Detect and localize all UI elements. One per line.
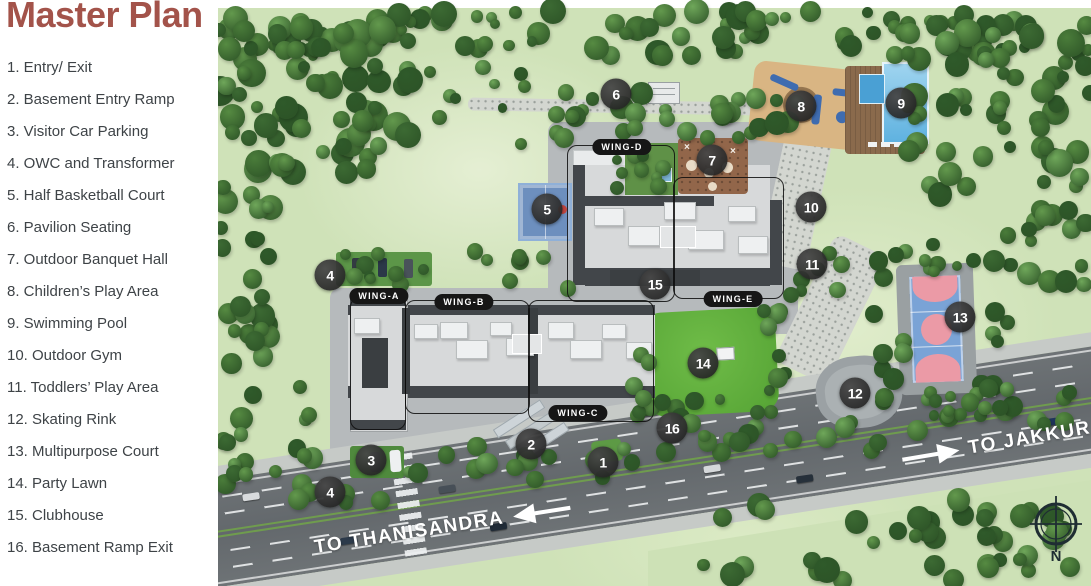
map-marker-16: 16 bbox=[657, 413, 688, 444]
map-marker-3: 3 bbox=[356, 445, 387, 476]
legend-item: 15. Clubhouse bbox=[7, 500, 175, 532]
legend-item: 7. Outdoor Banquet Hall bbox=[7, 244, 175, 276]
car bbox=[703, 464, 721, 473]
tree bbox=[489, 79, 499, 89]
tree bbox=[432, 110, 447, 125]
map-marker-11: 11 bbox=[797, 249, 828, 280]
tree bbox=[1035, 205, 1055, 225]
tree bbox=[1000, 382, 1014, 396]
tree bbox=[746, 88, 767, 109]
legend-item: 10. Outdoor Gym bbox=[7, 340, 175, 372]
tree bbox=[978, 52, 994, 68]
wing-pill-wing-b: WING-B bbox=[434, 294, 493, 310]
tree bbox=[388, 266, 404, 282]
legend-item: 9. Swimming Pool bbox=[7, 308, 175, 340]
tree bbox=[901, 46, 915, 60]
tree bbox=[239, 467, 253, 481]
map-marker-10: 10 bbox=[796, 192, 827, 223]
tree bbox=[1057, 29, 1085, 57]
tree bbox=[888, 247, 904, 263]
tree bbox=[992, 400, 1008, 416]
tree bbox=[698, 430, 710, 442]
map-marker-15: 15 bbox=[640, 269, 671, 300]
compass-icon bbox=[1026, 494, 1086, 554]
page-title: Master Plan bbox=[6, 0, 203, 36]
tree bbox=[1037, 175, 1051, 189]
tree bbox=[288, 489, 309, 510]
tree bbox=[251, 101, 263, 113]
kids-pool bbox=[859, 74, 885, 104]
tree bbox=[1031, 79, 1055, 103]
map-marker-2: 2 bbox=[516, 429, 547, 460]
tree bbox=[729, 432, 750, 453]
tree bbox=[471, 10, 483, 22]
tree bbox=[293, 380, 307, 394]
tree bbox=[993, 101, 1007, 115]
legend-item: 12. Skating Rink bbox=[7, 404, 175, 436]
map-marker-4: 4 bbox=[315, 477, 346, 508]
tree bbox=[764, 405, 778, 419]
tree bbox=[889, 522, 907, 540]
tree bbox=[467, 243, 483, 259]
tree bbox=[243, 269, 262, 288]
wing-pill-wing-e: WING-E bbox=[704, 291, 763, 307]
tree bbox=[627, 120, 643, 136]
tree bbox=[936, 142, 956, 162]
tree bbox=[370, 137, 388, 155]
tree bbox=[976, 509, 994, 527]
wing-pill-wing-a: WING-A bbox=[349, 288, 408, 304]
tree bbox=[945, 391, 956, 402]
legend-item: 14. Party Lawn bbox=[7, 468, 175, 500]
pool-lounger bbox=[881, 142, 890, 147]
tree bbox=[945, 52, 970, 77]
tree bbox=[960, 104, 972, 116]
tree bbox=[630, 82, 652, 104]
tree bbox=[228, 324, 241, 337]
tree bbox=[765, 111, 789, 135]
tree bbox=[966, 253, 981, 268]
tree bbox=[894, 344, 912, 362]
map-marker-9: 9 bbox=[886, 88, 917, 119]
tree bbox=[873, 344, 892, 363]
tree bbox=[907, 506, 931, 530]
tree bbox=[490, 19, 500, 29]
legend-item: 8. Children’s Play Area bbox=[7, 276, 175, 308]
tree bbox=[845, 510, 869, 534]
tree bbox=[652, 45, 673, 66]
tree bbox=[755, 500, 775, 520]
tree bbox=[287, 41, 305, 59]
legend-item: 3. Visitor Car Parking bbox=[7, 116, 175, 148]
tree bbox=[985, 27, 1001, 43]
tree bbox=[1013, 553, 1026, 566]
tree bbox=[1075, 259, 1089, 273]
tree bbox=[357, 159, 376, 178]
tree bbox=[935, 31, 959, 55]
tree bbox=[928, 182, 952, 206]
tree bbox=[526, 471, 544, 489]
tree bbox=[1019, 24, 1044, 49]
tree bbox=[565, 110, 578, 123]
tree bbox=[712, 26, 735, 49]
tree bbox=[316, 145, 330, 159]
tree bbox=[455, 36, 475, 56]
legend-item: 13. Multipurpose Court bbox=[7, 436, 175, 468]
tree bbox=[225, 125, 240, 140]
tree bbox=[929, 394, 942, 407]
tree bbox=[869, 434, 886, 451]
tree bbox=[757, 304, 771, 318]
tree bbox=[431, 1, 457, 27]
map-marker-8: 8 bbox=[786, 91, 817, 122]
tree bbox=[1000, 227, 1017, 244]
compass-north-label: N bbox=[1044, 548, 1068, 565]
tree bbox=[395, 122, 421, 148]
tree bbox=[1017, 262, 1040, 285]
tree bbox=[481, 254, 493, 266]
tree bbox=[476, 453, 498, 475]
tree bbox=[335, 161, 358, 184]
tree bbox=[991, 335, 1004, 348]
tree bbox=[221, 353, 241, 373]
wing-outline-e bbox=[673, 177, 784, 299]
tree bbox=[371, 491, 390, 510]
tree bbox=[512, 249, 527, 264]
tree bbox=[1075, 56, 1091, 76]
legend-item: 6. Pavilion Seating bbox=[7, 212, 175, 244]
tree bbox=[869, 251, 889, 271]
tree bbox=[900, 23, 920, 43]
pool-lounger bbox=[868, 142, 877, 147]
tree bbox=[254, 113, 278, 137]
tree bbox=[548, 106, 565, 123]
tree bbox=[835, 417, 856, 438]
tree bbox=[760, 318, 777, 335]
tree bbox=[558, 84, 574, 100]
legend-item: 2. Basement Entry Ramp bbox=[7, 84, 175, 116]
tree bbox=[829, 282, 846, 299]
tree bbox=[954, 408, 967, 421]
tree bbox=[1055, 270, 1077, 292]
tree bbox=[997, 67, 1010, 80]
tree bbox=[783, 287, 799, 303]
map-marker-6: 6 bbox=[601, 79, 632, 110]
tree bbox=[936, 93, 960, 117]
tree bbox=[367, 58, 383, 74]
tree bbox=[1070, 168, 1089, 187]
tree bbox=[232, 87, 247, 102]
tree bbox=[983, 250, 1005, 272]
tree bbox=[624, 454, 640, 470]
car bbox=[242, 492, 260, 501]
legend-item: 4. OWC and Transformer bbox=[7, 148, 175, 180]
wing-outline-c bbox=[528, 300, 654, 422]
tree bbox=[640, 18, 659, 37]
wing-pill-wing-d: WING-D bbox=[592, 139, 651, 155]
tree bbox=[973, 146, 994, 167]
legend-list: 1. Entry/ Exit2. Basement Entry Ramp3. V… bbox=[7, 52, 175, 564]
tree bbox=[371, 247, 385, 261]
tree bbox=[515, 138, 527, 150]
tree bbox=[883, 368, 905, 390]
tree bbox=[475, 60, 490, 75]
tree bbox=[833, 256, 850, 273]
tree bbox=[503, 40, 515, 52]
tree bbox=[1082, 85, 1091, 102]
tree bbox=[928, 266, 939, 277]
tree bbox=[814, 557, 840, 583]
tree bbox=[866, 26, 881, 41]
map-marker-7: 7 bbox=[697, 145, 728, 176]
map-marker-12: 12 bbox=[840, 378, 871, 409]
tree bbox=[369, 16, 396, 43]
tree bbox=[1076, 214, 1091, 233]
tree bbox=[298, 61, 310, 73]
tree bbox=[898, 140, 920, 162]
map-marker-1: 1 bbox=[588, 447, 619, 478]
tree bbox=[311, 38, 330, 57]
tree bbox=[408, 463, 427, 482]
tree bbox=[352, 110, 373, 131]
legend-item: 5. Half Basketball Court bbox=[7, 180, 175, 212]
tree bbox=[424, 66, 436, 78]
tree bbox=[509, 6, 522, 19]
tree bbox=[218, 37, 241, 60]
tree bbox=[506, 459, 523, 476]
legend-item: 16. Basement Ramp Exit bbox=[7, 532, 175, 564]
car bbox=[796, 474, 814, 483]
tree bbox=[237, 66, 251, 80]
tree bbox=[333, 23, 354, 44]
tree bbox=[979, 379, 998, 398]
tree bbox=[909, 529, 923, 543]
tree bbox=[275, 96, 298, 119]
tree bbox=[278, 155, 294, 171]
tree bbox=[554, 128, 574, 148]
tree bbox=[697, 559, 710, 572]
tree bbox=[1021, 222, 1037, 238]
tree bbox=[297, 448, 313, 464]
tree bbox=[254, 289, 270, 305]
tree bbox=[340, 249, 351, 260]
wing-outline-a bbox=[350, 297, 406, 430]
tree bbox=[875, 388, 894, 407]
tree bbox=[768, 368, 788, 388]
wing-outline-b bbox=[405, 300, 530, 414]
tree bbox=[333, 111, 350, 128]
pavilion-seating bbox=[648, 82, 680, 104]
tree bbox=[1062, 385, 1077, 400]
legend-item: 11. Toddlers’ Play Area bbox=[7, 372, 175, 404]
tree bbox=[720, 562, 745, 586]
tree bbox=[584, 36, 608, 60]
tree bbox=[536, 250, 551, 265]
tree bbox=[677, 122, 697, 142]
tree bbox=[306, 74, 324, 92]
tree bbox=[997, 121, 1011, 135]
map-marker-13: 13 bbox=[945, 302, 976, 333]
tree bbox=[943, 569, 964, 586]
wing-pill-wing-c: WING-C bbox=[548, 405, 607, 421]
tree bbox=[1038, 140, 1053, 155]
tree bbox=[234, 427, 249, 442]
map-marker-5: 5 bbox=[532, 194, 563, 225]
master-plan-page: × × TO THANISANDRATO JAKKUR bbox=[0, 0, 1091, 586]
legend-item: 1. Entry/ Exit bbox=[7, 52, 175, 84]
tree bbox=[947, 488, 971, 512]
tree bbox=[700, 130, 716, 146]
tree bbox=[438, 446, 455, 463]
map-marker-4: 4 bbox=[315, 260, 346, 291]
map-marker-14: 14 bbox=[688, 348, 719, 379]
tree bbox=[241, 130, 257, 146]
tree bbox=[763, 443, 778, 458]
tree bbox=[518, 80, 531, 93]
tree bbox=[340, 39, 368, 67]
tree bbox=[1076, 277, 1091, 293]
tree bbox=[659, 111, 675, 127]
tree bbox=[800, 1, 821, 22]
legend-panel: Master Plan 1. Entry/ Exit2. Basement En… bbox=[0, 0, 218, 586]
car bbox=[438, 484, 456, 493]
tree bbox=[619, 27, 632, 40]
lawn-pergola bbox=[716, 347, 735, 361]
tree bbox=[1003, 258, 1017, 272]
tree bbox=[365, 274, 375, 284]
site-map: × × TO THANISANDRATO JAKKUR bbox=[218, 0, 1091, 586]
